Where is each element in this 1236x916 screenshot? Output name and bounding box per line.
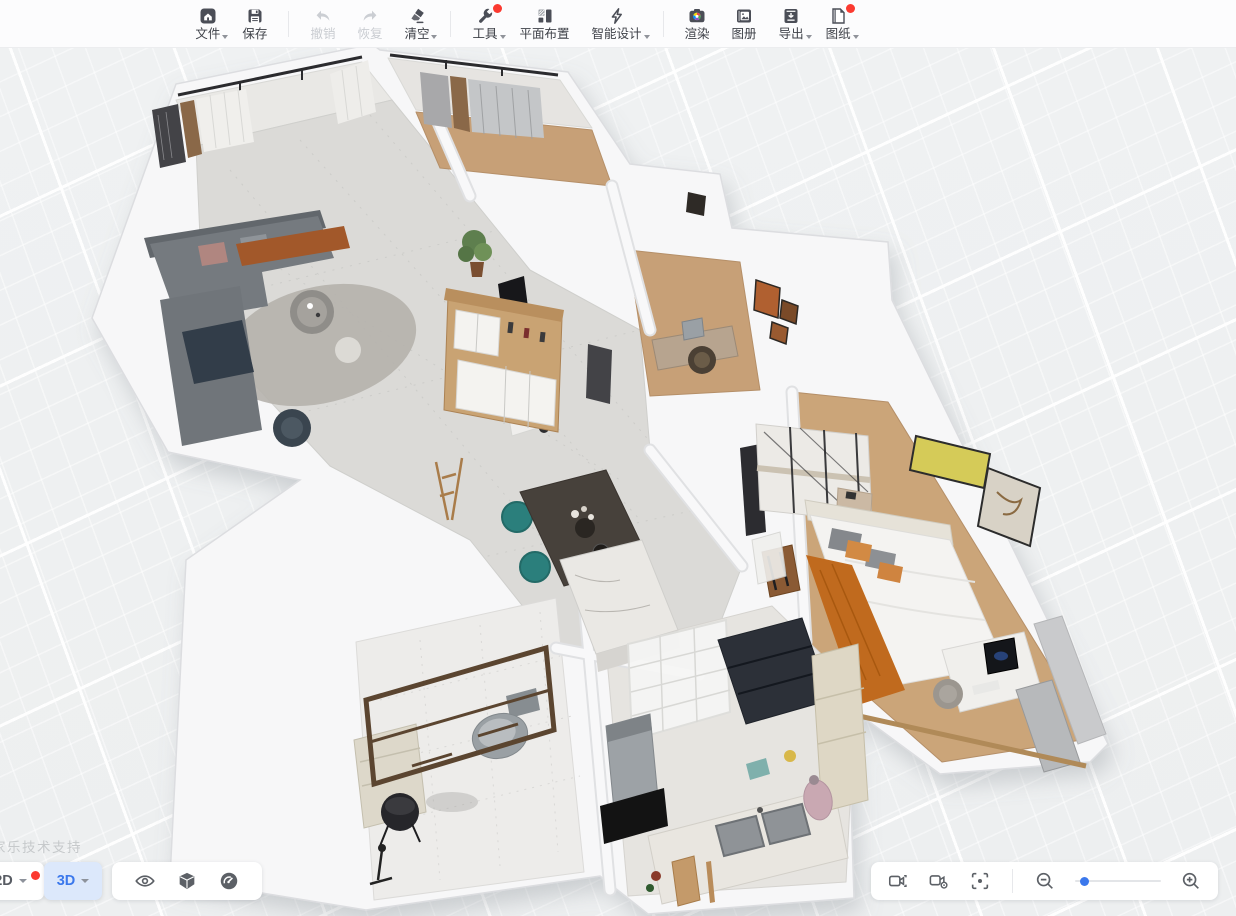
chevron-down-icon	[222, 35, 228, 39]
save-button[interactable]: 保存	[231, 3, 278, 45]
clear-label: 清空	[404, 28, 429, 41]
redo-icon	[360, 6, 380, 26]
3d-viewport[interactable]: 家乐技术支持 2D 3D	[0, 48, 1236, 916]
view-mode-2d-button[interactable]: 2D	[0, 862, 44, 900]
chevron-down-icon	[81, 879, 89, 883]
render-label: 渲染	[685, 28, 710, 41]
tools-button[interactable]: 工具	[461, 3, 508, 45]
export-button[interactable]: 导出	[768, 3, 815, 45]
smart-design-label: 智能设计	[592, 28, 642, 41]
file-label: 文件	[195, 28, 220, 41]
floor-plan-label: 平面布置	[520, 28, 570, 41]
toolbar-divider	[450, 11, 451, 37]
smart-design-button[interactable]: 智能设计	[581, 3, 653, 45]
zoom-in-button[interactable]	[1180, 870, 1202, 892]
chevron-down-icon	[19, 879, 27, 883]
view-mode-3d-button[interactable]: 3D	[44, 862, 102, 900]
save-label: 保存	[242, 28, 267, 41]
tools-label: 工具	[472, 28, 497, 41]
focus-center-button[interactable]	[969, 870, 991, 892]
render-button[interactable]: 渲染	[674, 3, 721, 45]
chevron-down-icon	[431, 35, 437, 39]
clear-button[interactable]: 清空	[393, 3, 440, 45]
undo-button: 撤销	[299, 3, 346, 45]
album-button[interactable]: 图册	[721, 3, 768, 45]
top-toolbar: 文件 保存 撤销 恢复 清空	[0, 0, 1236, 48]
file-button[interactable]: 文件	[184, 3, 231, 45]
floorplan-3d-scene	[0, 0, 1236, 916]
zoom-out-button[interactable]	[1034, 870, 1056, 892]
lightning-icon	[607, 6, 627, 26]
performance-gauge-button[interactable]	[218, 870, 240, 892]
album-icon	[734, 6, 754, 26]
undo-icon	[313, 6, 333, 26]
chevron-down-icon	[806, 35, 812, 39]
file-icon	[198, 6, 218, 26]
zoom-slider-handle[interactable]	[1080, 877, 1089, 886]
camera-zoom-panel	[871, 862, 1218, 900]
view-mode-3d-label: 3D	[57, 873, 76, 889]
floor-plan-button[interactable]: 平面布置	[509, 3, 581, 45]
toolbar-buttons: 文件 保存 撤销 恢复 清空	[184, 0, 861, 47]
zoom-slider[interactable]	[1075, 880, 1161, 882]
redo-button: 恢复	[346, 3, 393, 45]
camera-settings-button[interactable]	[928, 870, 950, 892]
eraser-icon	[407, 6, 427, 26]
watermark: 家乐技术支持	[0, 836, 82, 856]
drawings-button[interactable]: 图纸	[815, 3, 862, 45]
render-camera-icon	[687, 6, 707, 26]
chevron-down-icon	[644, 35, 650, 39]
drawings-label: 图纸	[826, 28, 851, 41]
view-tools-panel	[112, 862, 262, 900]
export-label: 导出	[779, 28, 804, 41]
notification-dot	[31, 871, 40, 880]
save-icon	[245, 6, 265, 26]
toolbar-divider	[288, 11, 289, 37]
cube-view-button[interactable]	[176, 870, 198, 892]
chevron-down-icon	[853, 35, 859, 39]
camera-view-button[interactable]	[887, 870, 909, 892]
export-icon	[781, 6, 801, 26]
notification-dot	[493, 4, 502, 13]
chevron-down-icon	[500, 35, 506, 39]
panel-divider	[1012, 869, 1013, 893]
album-label: 图册	[732, 28, 757, 41]
view-mode-2d-label: 2D	[0, 873, 13, 889]
notification-dot	[846, 4, 855, 13]
visibility-eye-button[interactable]	[134, 870, 156, 892]
undo-label: 撤销	[310, 28, 335, 41]
toolbar-divider	[663, 11, 664, 37]
floor-layout-icon	[535, 6, 555, 26]
redo-label: 恢复	[357, 28, 382, 41]
